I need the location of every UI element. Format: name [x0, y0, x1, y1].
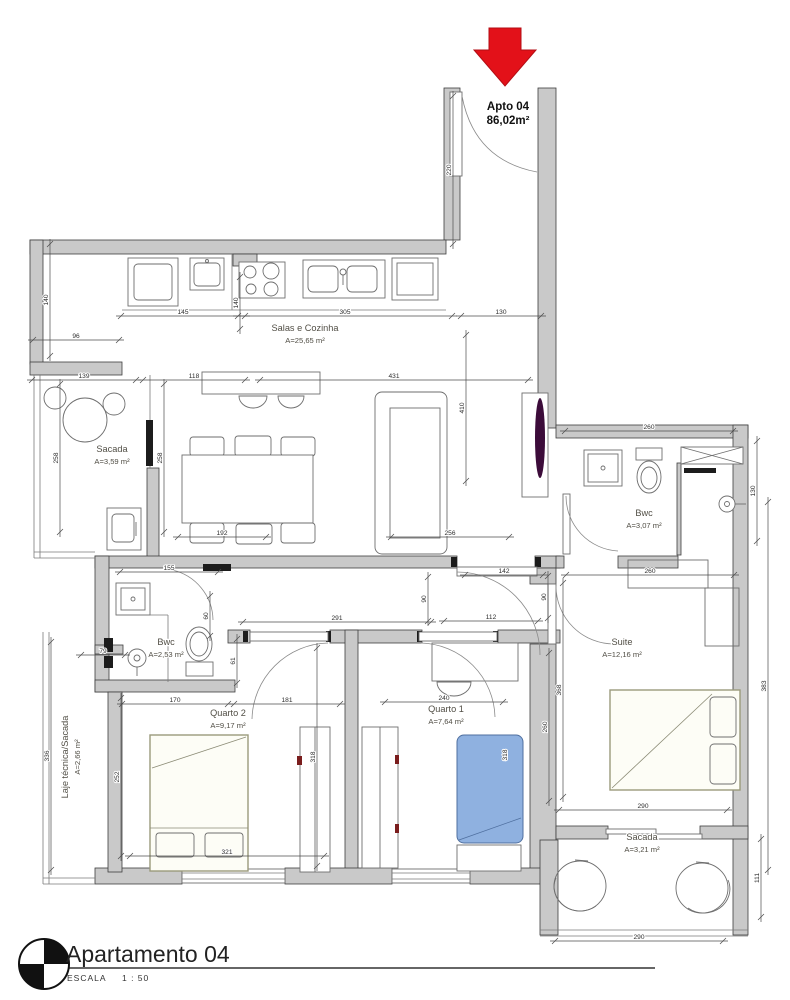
bedroom1-furniture — [362, 643, 523, 871]
dimension-label: 291 — [331, 615, 342, 622]
wardrobe-handle — [297, 756, 302, 765]
dimension-label: 260 — [644, 568, 655, 575]
dimension-label: 410 — [459, 402, 466, 413]
suite-bwc-door — [563, 494, 618, 554]
balcony-chairs — [554, 860, 730, 913]
room-label: Laje técnica/SacadaA=2,66 m² — [60, 715, 82, 799]
tv — [535, 398, 545, 478]
dimension: 318 — [502, 749, 509, 760]
cooktop — [239, 262, 285, 298]
dimension: 111 — [754, 834, 764, 922]
dimension-label: 140 — [43, 294, 50, 305]
room-name: Bwc — [635, 508, 653, 518]
dimension-label: 192 — [216, 530, 227, 537]
bathroom2-fixtures — [116, 583, 213, 682]
dimension: 290 — [550, 934, 728, 944]
dimension: 130 — [456, 309, 546, 319]
dimension-label: 142 — [498, 568, 509, 575]
stool — [278, 396, 304, 408]
kitchen-sink — [190, 258, 224, 290]
vanity — [116, 583, 150, 615]
suite-bathroom-fixtures — [584, 447, 746, 512]
dimension-label: 260 — [643, 424, 654, 431]
room-name: Sacada — [96, 444, 128, 454]
dimension-label: 258 — [53, 452, 60, 463]
tv-rack — [522, 393, 548, 497]
dimension-label: 140 — [233, 297, 240, 308]
dimension: 410 — [459, 330, 469, 486]
room-area: A=25,65 m² — [285, 336, 325, 345]
room-area: A=2,53 m² — [148, 650, 184, 659]
bedroom2-furniture — [150, 727, 330, 872]
washing-machine — [128, 258, 178, 306]
single-bed-highlighted — [457, 735, 523, 871]
vanity — [584, 450, 622, 486]
dimension: 305 — [233, 309, 457, 319]
floor-plan-drawing: 2201409614514030513013911843125825841025… — [0, 0, 790, 1000]
dimension: 112 — [439, 614, 543, 624]
room-area: A=2,66 m² — [73, 739, 82, 775]
dimension: 258 — [53, 379, 63, 537]
dimension-label: 111 — [754, 873, 761, 883]
round-table — [63, 398, 107, 442]
dimension-label: 240 — [438, 695, 449, 702]
dimension-label: 305 — [339, 309, 350, 316]
room-label: Quarto 1A=7,64 m² — [428, 704, 464, 726]
desk-chair — [437, 682, 471, 696]
armchair — [554, 860, 606, 911]
dimension: 260 — [561, 568, 739, 578]
dimension-label: 431 — [388, 373, 399, 380]
dimension-label: 318 — [310, 751, 317, 762]
toilet — [636, 448, 662, 493]
shower-box — [681, 447, 743, 464]
room-label: SacadaA=3,59 m² — [94, 444, 130, 466]
shower-head — [128, 649, 146, 676]
kitchen — [122, 254, 446, 310]
armchair — [676, 862, 730, 913]
room-name: Bwc — [157, 637, 175, 647]
dimension: 383 — [761, 497, 771, 875]
dimension-label: 112 — [486, 614, 497, 621]
toilet — [186, 627, 213, 676]
room-label: SacadaA=3,21 m² — [624, 832, 660, 854]
double-sink — [303, 260, 385, 298]
suite-furniture — [610, 560, 740, 790]
dimension: 170 — [117, 697, 233, 707]
entrance-arrow-icon — [474, 28, 536, 86]
scale-label: ESCALA — [67, 973, 107, 983]
dimension: 90 — [421, 572, 431, 626]
chair — [103, 393, 125, 415]
dimension: 368 — [556, 578, 566, 802]
room-area: A=3,07 m² — [626, 521, 662, 530]
dimension-label: 256 — [444, 530, 455, 537]
scale-value: 1 : 50 — [122, 973, 149, 983]
room-name: Sacada — [626, 832, 658, 842]
room-name: Suite — [612, 637, 633, 647]
dimension-label: 220 — [446, 164, 453, 175]
dimension: 145 — [116, 309, 250, 319]
room-label: BwcA=3,07 m² — [626, 508, 662, 530]
dimension: 181 — [229, 697, 345, 707]
room-label: SuiteA=12,16 m² — [602, 637, 642, 659]
dimension-label: 383 — [761, 680, 768, 691]
dimension-label: 336 — [44, 750, 51, 761]
room-label: BwcA=2,53 m² — [148, 637, 184, 659]
north-symbol-icon — [19, 939, 69, 989]
dimension-label: 155 — [163, 565, 174, 572]
dimension: 192 — [173, 530, 271, 540]
stool — [239, 396, 267, 408]
sofa — [375, 392, 447, 554]
dimension-label: 61 — [230, 657, 237, 665]
room-area: A=9,17 m² — [210, 721, 246, 730]
room-area: A=3,59 m² — [94, 457, 130, 466]
chair — [44, 387, 66, 409]
dimension: 140 — [43, 239, 53, 361]
title-block: Apartamento 04 ESCALA 1 : 50 — [19, 939, 655, 989]
counter-appliance — [392, 258, 438, 300]
bedroom2-door — [250, 632, 328, 719]
room-label: Quarto 2A=9,17 m² — [210, 708, 246, 730]
dimension: 130 — [750, 436, 760, 546]
dimension: 291 — [238, 615, 436, 625]
dimension-label: 130 — [495, 309, 506, 316]
wardrobe — [297, 727, 330, 872]
dining-set — [182, 436, 315, 544]
wardrobe-handle — [395, 824, 399, 833]
dimension-label: 60 — [203, 612, 210, 620]
dimension-label: 321 — [221, 849, 232, 856]
unit-area: 86,02m² — [487, 115, 530, 127]
room-name: Quarto 2 — [210, 708, 246, 718]
double-bed — [150, 735, 248, 871]
dimension-label: 90 — [421, 595, 428, 603]
room-area: A=7,64 m² — [428, 717, 464, 726]
dimension-label: 90 — [541, 593, 548, 601]
floor-plan-page: 2201409614514030513013911843125825841025… — [0, 0, 790, 1000]
dimension-label: 318 — [502, 749, 509, 760]
balcony-table-set — [44, 387, 141, 550]
dimension-label: 290 — [637, 803, 648, 810]
dimension-label: 118 — [189, 373, 200, 380]
dimension-label: 260 — [542, 721, 549, 732]
dimension-label: 181 — [281, 697, 292, 704]
dimension-label: 258 — [157, 452, 164, 463]
room-label: Salas e CozinhaA=25,65 m² — [272, 323, 340, 345]
dimension-label: 139 — [78, 373, 89, 380]
room-name: Salas e Cozinha — [272, 323, 340, 333]
balcony-cabinet — [107, 508, 141, 550]
island-counter — [202, 372, 320, 408]
desk — [432, 643, 518, 696]
room-area: A=12,16 m² — [602, 650, 642, 659]
room-area: A=3,21 m² — [624, 845, 660, 854]
unit-label: Apto 04 — [487, 101, 530, 113]
dimension-label: 145 — [177, 309, 188, 316]
dimension-label: 290 — [633, 934, 644, 941]
dimension-label: 252 — [114, 771, 121, 782]
dimension: 290 — [554, 803, 732, 813]
double-bed — [610, 690, 740, 790]
plan-title: Apartamento 04 — [66, 941, 230, 967]
wardrobe — [362, 727, 399, 868]
dimension-label: 368 — [556, 684, 563, 695]
wardrobe-handle — [395, 755, 399, 764]
dimension-label: 79 — [99, 648, 107, 655]
room-name: Quarto 1 — [428, 704, 464, 714]
bed-foot — [457, 845, 521, 871]
dimension-label: 170 — [169, 697, 180, 704]
dimension-label: 130 — [750, 485, 757, 496]
room-name: Laje técnica/Sacada — [60, 715, 70, 799]
dimension-label: 96 — [72, 333, 80, 340]
